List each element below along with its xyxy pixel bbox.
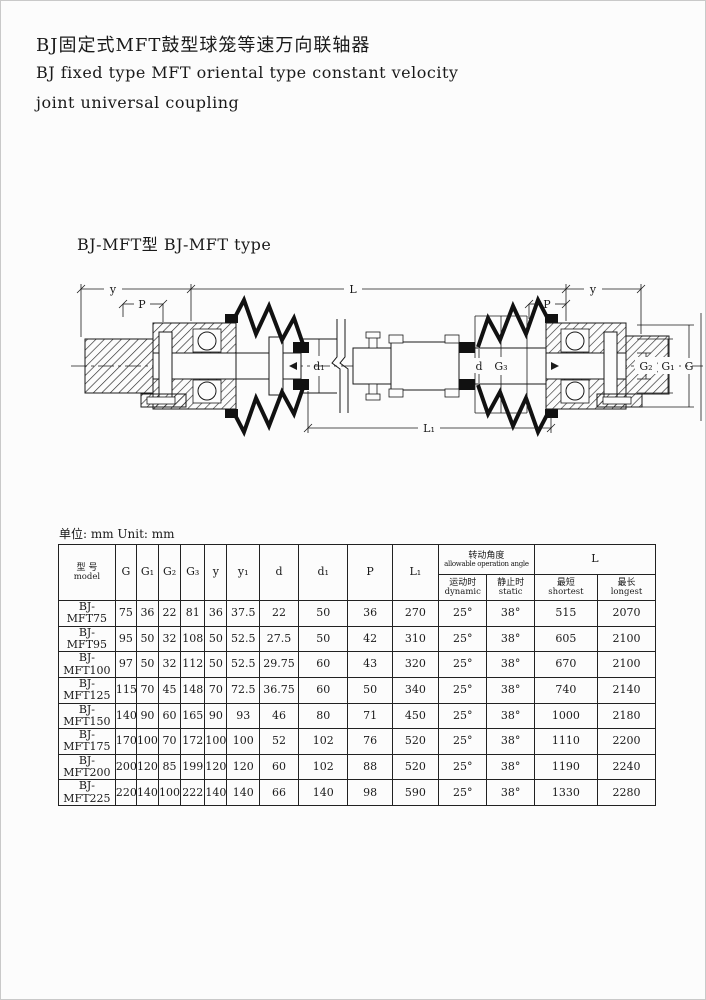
- spec-value-cell: 50: [205, 626, 227, 652]
- spec-value-cell: 340: [392, 677, 438, 703]
- spec-value-cell: 32: [159, 626, 181, 652]
- table-row: BJ-MFT1501409060165909346807145025°38°10…: [59, 703, 656, 729]
- spec-value-cell: 38°: [487, 754, 534, 780]
- spec-value-cell: 60: [159, 703, 181, 729]
- spec-value-cell: 100: [159, 780, 181, 806]
- spec-value-cell: 2070: [597, 601, 655, 627]
- spec-value-cell: 52.5: [227, 626, 260, 652]
- spec-value-cell: 25°: [439, 652, 487, 678]
- spec-value-cell: 22: [159, 601, 181, 627]
- spec-value-cell: 25°: [439, 754, 487, 780]
- spec-value-cell: 38°: [487, 703, 534, 729]
- col-header-dynamic-en: dynamic: [439, 588, 486, 598]
- spec-value-cell: 25°: [439, 780, 487, 806]
- model-cell: BJ-MFT125: [59, 677, 116, 703]
- spec-value-cell: 115: [115, 677, 136, 703]
- model-cell: BJ-MFT175: [59, 729, 116, 755]
- col-header-dynamic: 运动时 dynamic: [439, 575, 487, 601]
- spec-value-cell: 25°: [439, 601, 487, 627]
- model-cell: BJ-MFT100: [59, 652, 116, 678]
- spec-value-cell: 148: [181, 677, 205, 703]
- col-header-model-en: model: [59, 573, 115, 583]
- spec-value-cell: 72.5: [227, 677, 260, 703]
- table-row: BJ-MFT959550321085052.527.5504231025°38°…: [59, 626, 656, 652]
- dim-label-y-right: y: [589, 283, 597, 296]
- spec-value-cell: 36: [136, 601, 158, 627]
- spec-value-cell: 2280: [597, 780, 655, 806]
- spec-value-cell: 2140: [597, 677, 655, 703]
- spec-value-cell: 70: [136, 677, 158, 703]
- grease-nipple-bottom: [369, 384, 377, 395]
- table-row: BJ-MFT1009750321125052.529.75604332025°3…: [59, 652, 656, 678]
- spec-value-cell: 50: [299, 601, 348, 627]
- spec-value-cell: 80: [299, 703, 348, 729]
- spec-value-cell: 52.5: [227, 652, 260, 678]
- col-header-shortest: 最短 shortest: [534, 575, 597, 601]
- spec-value-cell: 50: [299, 626, 348, 652]
- right-boot: [478, 300, 548, 347]
- spec-value-cell: 25°: [439, 703, 487, 729]
- col-header-static: 静止时 static: [487, 575, 534, 601]
- spec-value-cell: 42: [348, 626, 392, 652]
- spec-value-cell: 71: [348, 703, 392, 729]
- spec-value-cell: 1110: [534, 729, 597, 755]
- page-title-chinese: BJ固定式MFT鼓型球笼等速万向联轴器: [36, 31, 370, 57]
- col-header-length: L: [534, 545, 655, 575]
- page-title-english-line1: BJ fixed type MFT oriental type constant…: [36, 63, 458, 82]
- model-cell: BJ-MFT225: [59, 780, 116, 806]
- spec-value-cell: 2200: [597, 729, 655, 755]
- sleeve: [391, 342, 459, 390]
- spec-value-cell: 100: [227, 729, 260, 755]
- dim-label-p-left: P: [138, 298, 146, 311]
- spec-value-cell: 66: [260, 780, 299, 806]
- dim-label-g1: G₁: [661, 360, 674, 373]
- spec-value-cell: 320: [392, 652, 438, 678]
- dim-label-l: L: [349, 283, 357, 296]
- col-header-l1: L₁: [392, 545, 438, 601]
- spec-value-cell: 740: [534, 677, 597, 703]
- model-cell: BJ-MFT75: [59, 601, 116, 627]
- dim-label-d: d: [475, 360, 482, 373]
- spec-value-cell: 50: [136, 652, 158, 678]
- spec-value-cell: 27.5: [260, 626, 299, 652]
- col-header-model: 型 号 model: [59, 545, 116, 601]
- spec-value-cell: 88: [348, 754, 392, 780]
- col-header-d1: d₁: [299, 545, 348, 601]
- spec-value-cell: 75: [115, 601, 136, 627]
- spec-value-cell: 38°: [487, 677, 534, 703]
- spec-value-cell: 46: [260, 703, 299, 729]
- left-shaft-block: [85, 339, 153, 393]
- spec-value-cell: 140: [115, 703, 136, 729]
- spec-value-cell: 90: [136, 703, 158, 729]
- spec-value-cell: 37.5: [227, 601, 260, 627]
- table-row: BJ-MFT225220140100222140140661409859025°…: [59, 780, 656, 806]
- spec-value-cell: 50: [136, 626, 158, 652]
- spec-value-cell: 605: [534, 626, 597, 652]
- table-row: BJ-MFT12511570451487072.536.75605034025°…: [59, 677, 656, 703]
- spec-value-cell: 38°: [487, 626, 534, 652]
- model-cell: BJ-MFT150: [59, 703, 116, 729]
- break-symbol: [332, 319, 340, 413]
- spec-value-cell: 98: [348, 780, 392, 806]
- spec-value-cell: 140: [205, 780, 227, 806]
- spec-value-cell: 520: [392, 754, 438, 780]
- table-row: BJ-MFT75753622813637.522503627025°38°515…: [59, 601, 656, 627]
- spec-value-cell: 100: [136, 729, 158, 755]
- page-title-english-line2: joint universal coupling: [36, 93, 239, 112]
- spec-value-cell: 50: [348, 677, 392, 703]
- spec-value-cell: 108: [181, 626, 205, 652]
- spec-value-cell: 120: [205, 754, 227, 780]
- spec-value-cell: 22: [260, 601, 299, 627]
- spec-value-cell: 140: [227, 780, 260, 806]
- col-header-g: G: [115, 545, 136, 601]
- unit-label: 单位: mm Unit: mm: [59, 525, 175, 542]
- spec-table-body: BJ-MFT75753622813637.522503627025°38°515…: [59, 601, 656, 806]
- spec-value-cell: 102: [299, 754, 348, 780]
- spec-value-cell: 81: [181, 601, 205, 627]
- dim-label-p-right: P: [543, 298, 551, 311]
- spec-value-cell: 165: [181, 703, 205, 729]
- spec-value-cell: 85: [159, 754, 181, 780]
- section-heading: BJ-MFT型 BJ-MFT type: [77, 231, 271, 255]
- spec-value-cell: 120: [227, 754, 260, 780]
- dim-label-g: G: [685, 360, 694, 373]
- col-header-d: d: [260, 545, 299, 601]
- dim-label-g3: G₃: [494, 360, 507, 373]
- col-header-g1: G₁: [136, 545, 158, 601]
- col-header-longest: 最长 longest: [597, 575, 655, 601]
- spec-value-cell: 102: [299, 729, 348, 755]
- spec-value-cell: 2100: [597, 626, 655, 652]
- dim-label-l1: L₁: [423, 422, 435, 435]
- spec-value-cell: 76: [348, 729, 392, 755]
- spec-value-cell: 32: [159, 652, 181, 678]
- model-cell: BJ-MFT200: [59, 754, 116, 780]
- spec-value-cell: 36: [348, 601, 392, 627]
- spec-value-cell: 200: [115, 754, 136, 780]
- col-header-angle: 转动角度 allowable operation angle: [439, 545, 535, 575]
- spec-value-cell: 50: [205, 652, 227, 678]
- spec-value-cell: 38°: [487, 652, 534, 678]
- spec-value-cell: 112: [181, 652, 205, 678]
- spec-value-cell: 2100: [597, 652, 655, 678]
- spec-value-cell: 38°: [487, 601, 534, 627]
- spec-value-cell: 95: [115, 626, 136, 652]
- catalog-page: y L y P P d₁ d G₃ G₂ G₁ G L₁ BJ固定式MFT鼓型球…: [0, 0, 706, 1000]
- spec-value-cell: 60: [260, 754, 299, 780]
- spec-value-cell: 25°: [439, 626, 487, 652]
- spec-value-cell: 1190: [534, 754, 597, 780]
- spec-value-cell: 120: [136, 754, 158, 780]
- spec-value-cell: 36: [205, 601, 227, 627]
- col-header-static-en: static: [487, 588, 533, 598]
- table-row: BJ-MFT17517010070172100100521027652025°3…: [59, 729, 656, 755]
- col-header-g3: G₃: [181, 545, 205, 601]
- spec-value-cell: 520: [392, 729, 438, 755]
- spec-value-cell: 450: [392, 703, 438, 729]
- col-header-shortest-en: shortest: [535, 588, 597, 598]
- spec-value-cell: 38°: [487, 780, 534, 806]
- spec-value-cell: 25°: [439, 677, 487, 703]
- spec-value-cell: 70: [159, 729, 181, 755]
- dim-label-y-left: y: [109, 283, 117, 296]
- spec-value-cell: 1330: [534, 780, 597, 806]
- col-header-angle-en: allowable operation angle: [439, 561, 534, 569]
- col-header-g2: G₂: [159, 545, 181, 601]
- spec-value-cell: 97: [115, 652, 136, 678]
- spec-value-cell: 60: [299, 677, 348, 703]
- spec-value-cell: 199: [181, 754, 205, 780]
- spec-value-cell: 100: [205, 729, 227, 755]
- col-header-p: P: [348, 545, 392, 601]
- spec-value-cell: 270: [392, 601, 438, 627]
- spec-value-cell: 29.75: [260, 652, 299, 678]
- spec-value-cell: 140: [299, 780, 348, 806]
- spec-value-cell: 2240: [597, 754, 655, 780]
- spec-value-cell: 170: [115, 729, 136, 755]
- spec-value-cell: 310: [392, 626, 438, 652]
- spec-value-cell: 45: [159, 677, 181, 703]
- spec-value-cell: 52: [260, 729, 299, 755]
- spec-value-cell: 1000: [534, 703, 597, 729]
- dim-label-g2: G₂: [639, 360, 652, 373]
- spec-value-cell: 36.75: [260, 677, 299, 703]
- spec-table: 型 号 model G G₁ G₂ G₃ y y₁ d d₁ P L₁ 转动角度…: [58, 544, 656, 806]
- spec-value-cell: 2180: [597, 703, 655, 729]
- spec-value-cell: 590: [392, 780, 438, 806]
- col-header-y: y: [205, 545, 227, 601]
- spec-value-cell: 43: [348, 652, 392, 678]
- spec-value-cell: 140: [136, 780, 158, 806]
- spec-value-cell: 90: [205, 703, 227, 729]
- spec-value-cell: 60: [299, 652, 348, 678]
- spec-value-cell: 38°: [487, 729, 534, 755]
- spec-value-cell: 172: [181, 729, 205, 755]
- spec-value-cell: 93: [227, 703, 260, 729]
- grease-nipple-top: [369, 337, 377, 348]
- model-cell: BJ-MFT95: [59, 626, 116, 652]
- spec-value-cell: 515: [534, 601, 597, 627]
- col-header-longest-en: longest: [598, 588, 655, 598]
- dim-label-d1: d₁: [313, 360, 324, 373]
- col-header-y1: y₁: [227, 545, 260, 601]
- table-row: BJ-MFT20020012085199120120601028852025°3…: [59, 754, 656, 780]
- spec-value-cell: 70: [205, 677, 227, 703]
- spec-value-cell: 222: [181, 780, 205, 806]
- spec-value-cell: 220: [115, 780, 136, 806]
- spec-value-cell: 25°: [439, 729, 487, 755]
- spec-value-cell: 670: [534, 652, 597, 678]
